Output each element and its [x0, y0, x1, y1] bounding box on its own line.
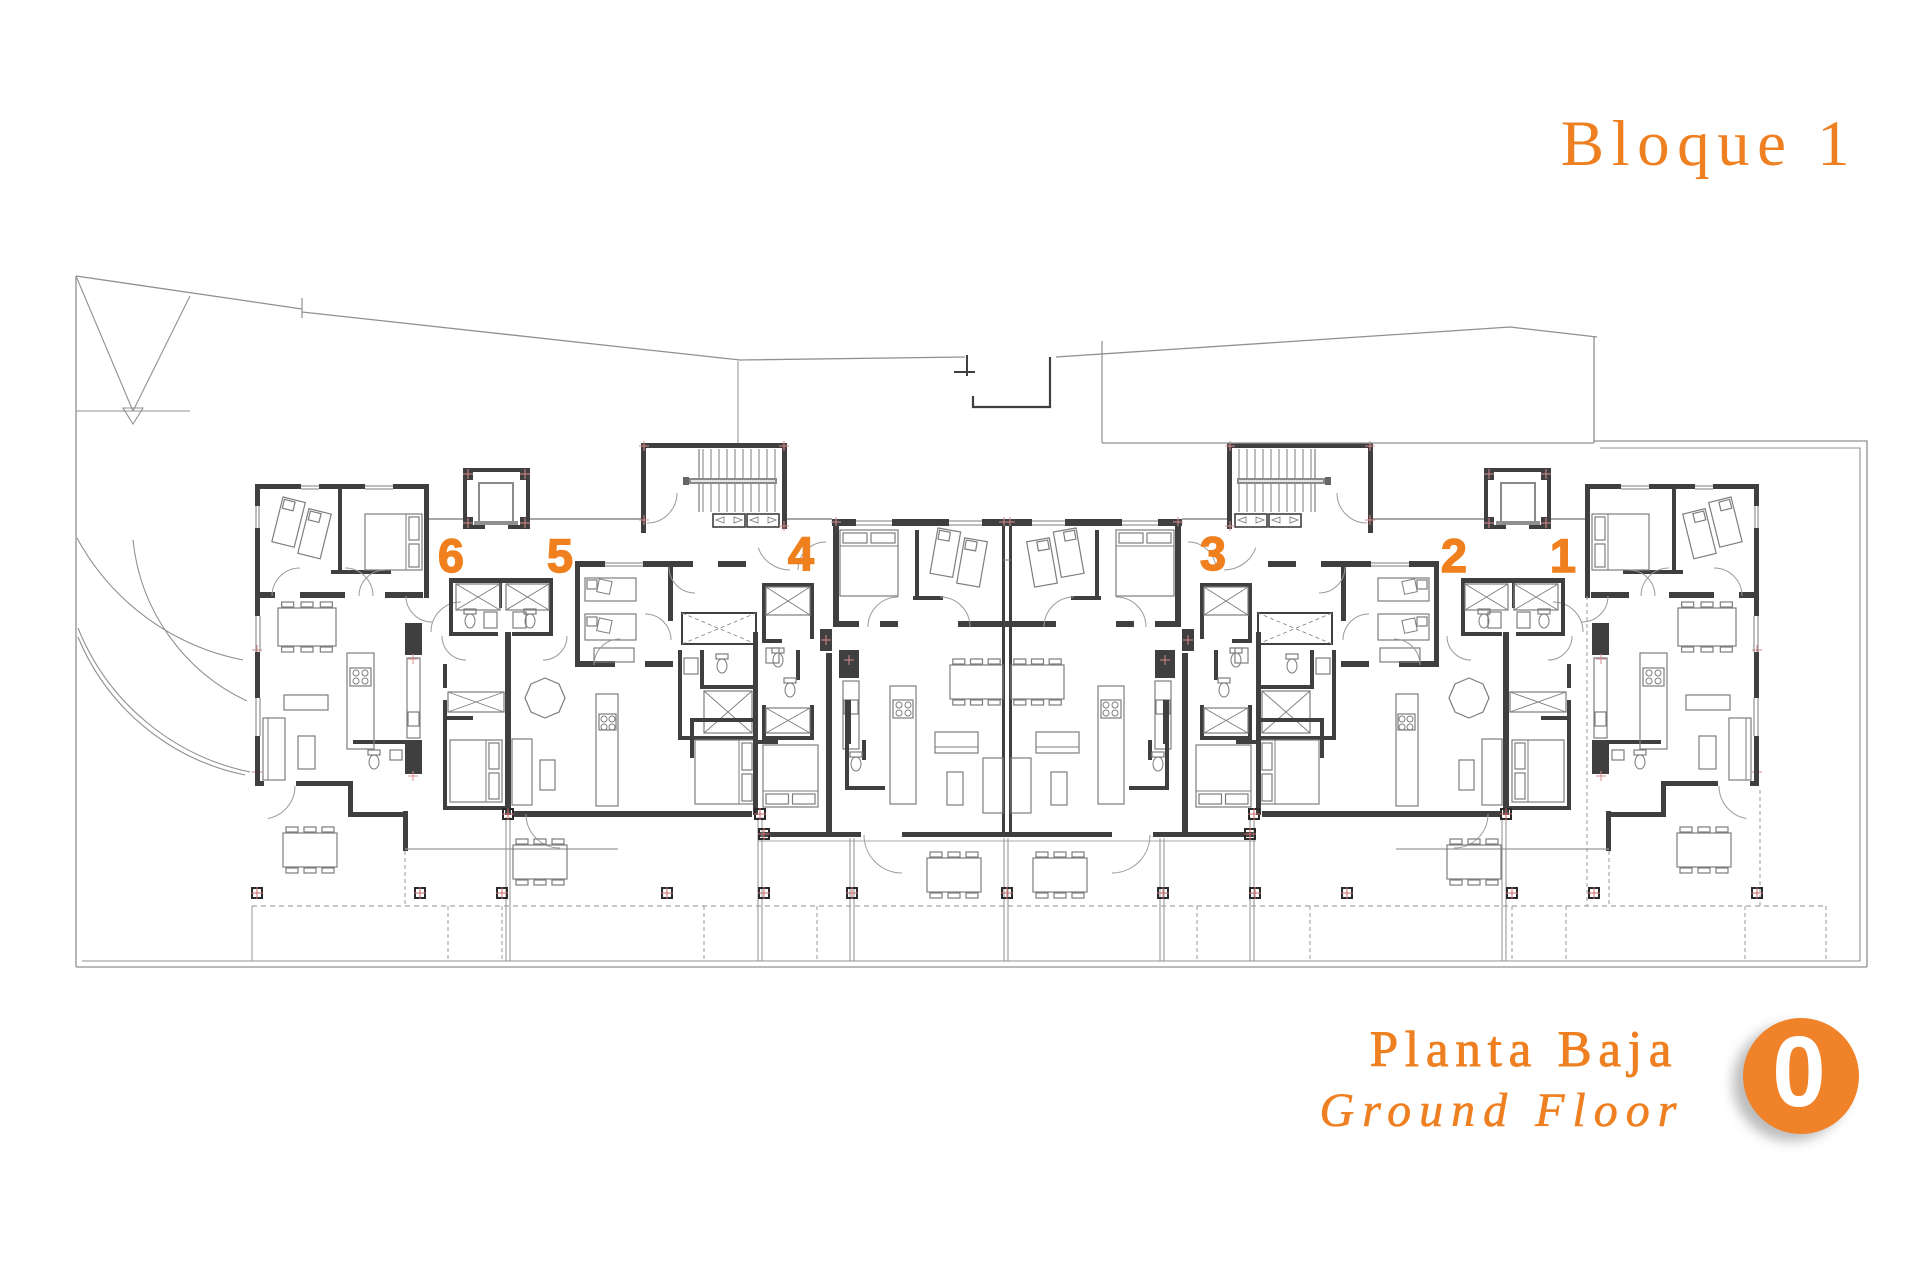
svg-text:0: 0 — [1772, 1015, 1825, 1127]
svg-text:Bloque 1: Bloque 1 — [1561, 108, 1858, 180]
svg-text:2: 2 — [1441, 529, 1467, 582]
svg-text:3: 3 — [1200, 527, 1226, 580]
svg-text:Planta Baja: Planta Baja — [1370, 1022, 1678, 1078]
svg-text:1: 1 — [1550, 529, 1576, 582]
svg-text:4: 4 — [788, 527, 814, 580]
svg-text:6: 6 — [438, 529, 464, 582]
svg-text:Ground Floor: Ground Floor — [1320, 1084, 1685, 1137]
svg-text:5: 5 — [547, 529, 573, 582]
